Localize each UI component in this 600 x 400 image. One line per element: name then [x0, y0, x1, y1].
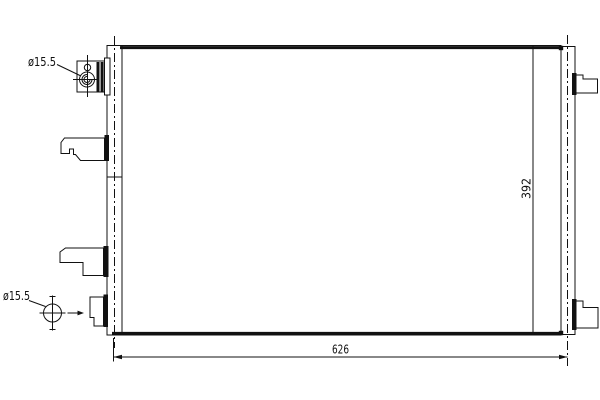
top-diameter-annotation: ø15.5 [28, 55, 81, 76]
outlet-mount-bar [104, 295, 109, 328]
fitting-block-bar [97, 62, 100, 92]
mounting-bracket-upper-left [61, 135, 109, 161]
fitting-block-flange [105, 58, 111, 95]
bottom-diameter-annotation: ø15.5 [3, 289, 46, 307]
condenser-body [107, 46, 561, 336]
height-dimension-label: 392 [520, 178, 534, 199]
condenser-technical-drawing: ø15.5 ø15.5 [0, 0, 600, 400]
dimension-tick-bottom [559, 331, 563, 335]
dimension-arrow-right [559, 355, 568, 360]
mounting-bracket-lower-left [60, 246, 109, 277]
bracket-shape [61, 138, 105, 161]
bracket-mount-bar [105, 135, 110, 161]
bracket-shape [60, 248, 104, 276]
mounting-bracket-upper-right [572, 73, 598, 95]
bracket-shape [573, 75, 598, 93]
width-dimension-label: 626 [332, 343, 349, 357]
flow-direction-arrow [68, 311, 85, 316]
width-dimension: 626 [114, 338, 568, 362]
fitting-block-bar [101, 62, 104, 92]
bracket-shape [573, 301, 598, 328]
condenser-outline [107, 46, 561, 336]
fitting-block-body [77, 61, 105, 92]
dimension-arrow-left [114, 355, 123, 360]
bottom-diameter-label: ø15.5 [3, 289, 30, 303]
outlet-block-shape [90, 297, 104, 326]
drawing-svg: ø15.5 ø15.5 [0, 0, 600, 400]
bracket-mount-bar [572, 73, 577, 95]
height-dimension: 392 [520, 46, 564, 335]
inlet-fitting-block [73, 55, 110, 97]
mounting-bracket-lower-right [572, 299, 598, 330]
bottom-leader-line [29, 301, 46, 307]
top-diameter-label: ø15.5 [28, 55, 56, 69]
outlet-fitting-block [90, 295, 108, 328]
right-arrow-head [78, 311, 85, 316]
outlet-port-face-view [40, 296, 66, 331]
dimension-tick-top [559, 46, 563, 50]
bracket-mount-bar [104, 246, 109, 277]
bracket-mount-bar [572, 299, 577, 330]
